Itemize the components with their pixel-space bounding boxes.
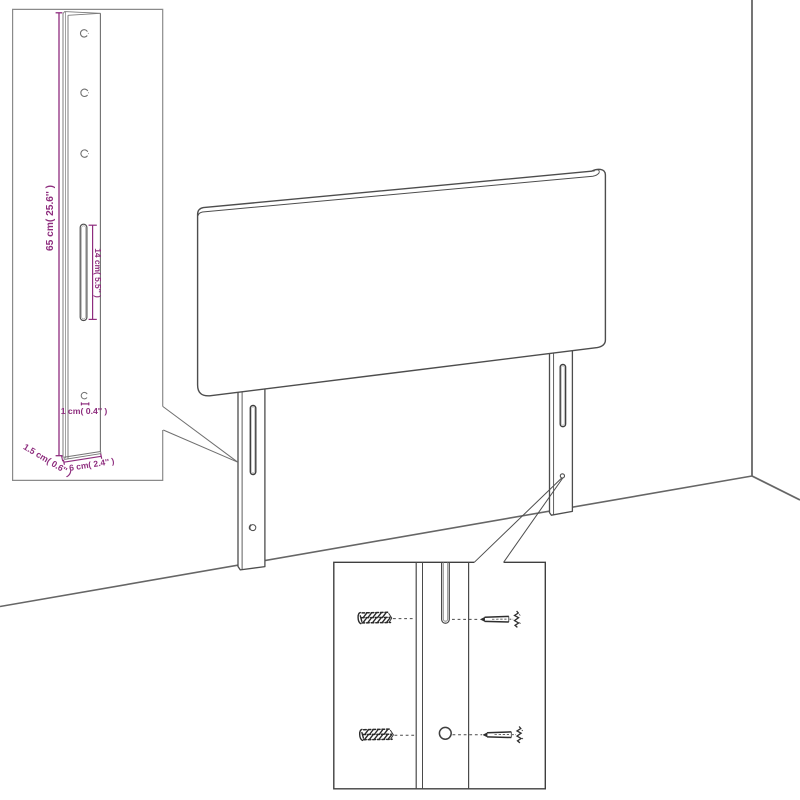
svg-text:1 cm( 0.4'' ): 1 cm( 0.4'' ) [61,406,108,416]
svg-text:14 cm( 5.5'' ): 14 cm( 5.5'' ) [93,248,103,298]
svg-text:65 cm( 25.6'' ): 65 cm( 25.6'' ) [45,185,56,251]
